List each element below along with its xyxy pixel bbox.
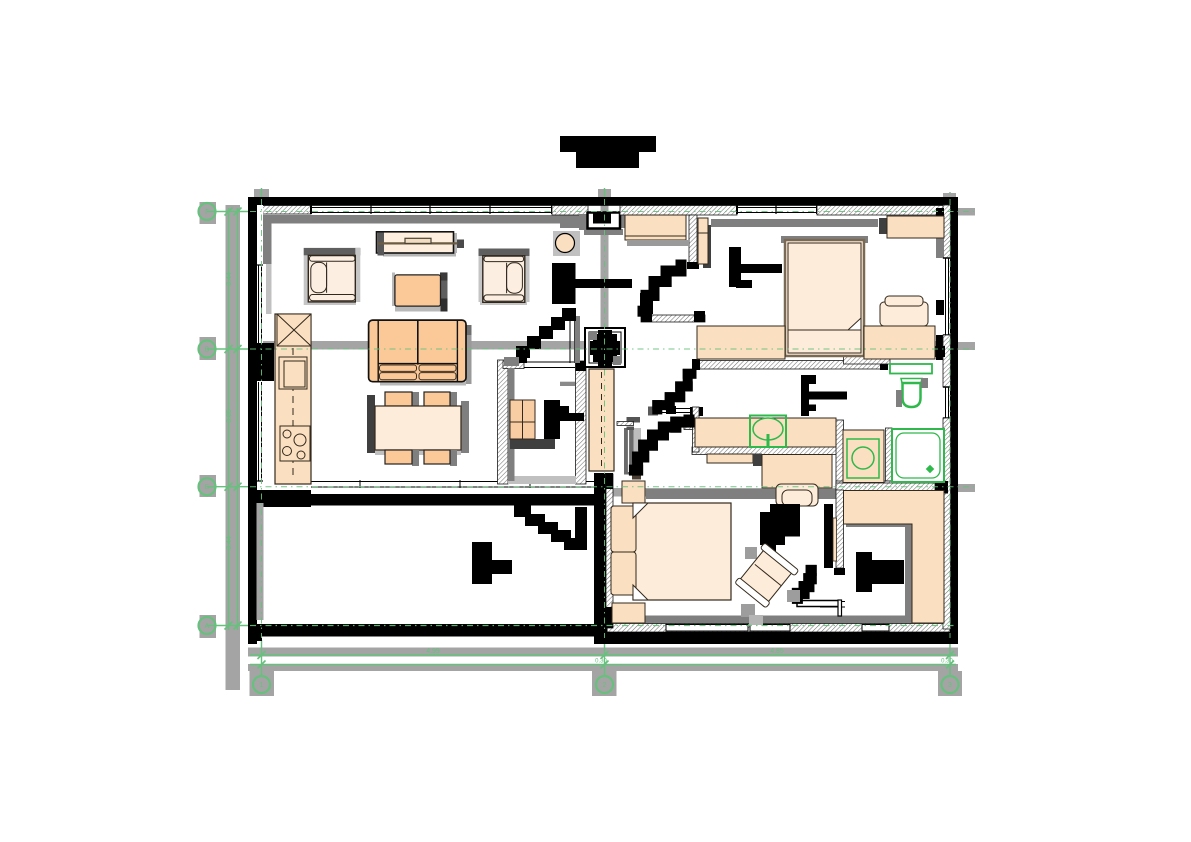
svg-text:Г: Г: [205, 209, 209, 216]
svg-text:4.99: 4.99: [426, 648, 440, 655]
svg-text:3.85: 3.85: [226, 409, 233, 423]
svg-text:В: В: [205, 347, 210, 354]
svg-text:Б: Б: [205, 484, 210, 491]
svg-text:2: 2: [603, 682, 607, 689]
svg-text:А: А: [205, 623, 210, 630]
svg-text:1: 1: [260, 682, 264, 689]
svg-text:3.44: 3.44: [226, 536, 233, 550]
svg-text:3.44: 3.44: [226, 272, 233, 286]
svg-text:3: 3: [948, 682, 952, 689]
svg-text:4.85: 4.85: [770, 648, 784, 655]
